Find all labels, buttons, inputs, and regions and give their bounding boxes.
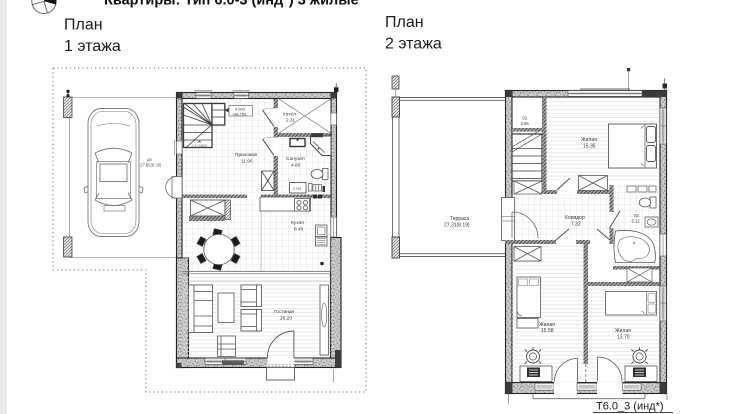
svg-text:Жилая: Жилая: [615, 328, 631, 334]
svg-text:План: План: [64, 17, 103, 34]
svg-text:Гостиная: Гостиная: [274, 309, 295, 315]
svg-text:3.66: 3.66: [521, 121, 530, 126]
svg-text:Квартиры: Тип 6.0-3 (инд*) 3 ж: Квартиры: Тип 6.0-3 (инд*) 3 жилые: [104, 0, 359, 9]
svg-text:27.85(8.36): 27.85(8.36): [140, 163, 162, 168]
svg-text:1 этажа: 1 этажа: [64, 38, 121, 55]
svg-text:Терраса: Терраса: [450, 216, 469, 222]
svg-text:+38.750: +38.750: [232, 111, 247, 116]
svg-text:Кухня: Кухня: [291, 220, 304, 226]
svg-text:26.20: 26.20: [280, 316, 292, 322]
svg-text:15.58: 15.58: [541, 328, 554, 334]
svg-text:с 1-го(до): с 1-го(до): [192, 144, 207, 148]
svg-text:Прихожая: Прихожая: [235, 152, 258, 158]
svg-text:План: План: [385, 14, 424, 31]
svg-text:13.70: 13.70: [617, 335, 630, 341]
svg-text:2 этажа: 2 этажа: [385, 36, 442, 53]
svg-text:2.31: 2.31: [286, 118, 295, 123]
svg-text:7.32: 7.32: [571, 222, 581, 228]
svg-text:Санузел: Санузел: [286, 156, 305, 162]
svg-text:8.40: 8.40: [294, 227, 304, 233]
svg-text:03: 03: [634, 213, 639, 218]
svg-text:Т6.0_3 (инд*): Т6.0_3 (инд*): [596, 401, 664, 413]
svg-text:Коридор: Коридор: [565, 215, 585, 221]
svg-text:11.96: 11.96: [241, 159, 253, 165]
svg-text:01: 01: [523, 116, 528, 121]
svg-text:5.12: 5.12: [632, 219, 641, 224]
svg-text:4.80: 4.80: [291, 163, 301, 169]
svg-text:СТ/М: СТ/М: [293, 187, 301, 191]
svg-text:15.35: 15.35: [583, 144, 596, 150]
svg-text:дв: дв: [147, 157, 152, 162]
svg-text:27.31(8.19): 27.31(8.19): [444, 222, 470, 228]
svg-text:Жилая: Жилая: [581, 137, 597, 143]
